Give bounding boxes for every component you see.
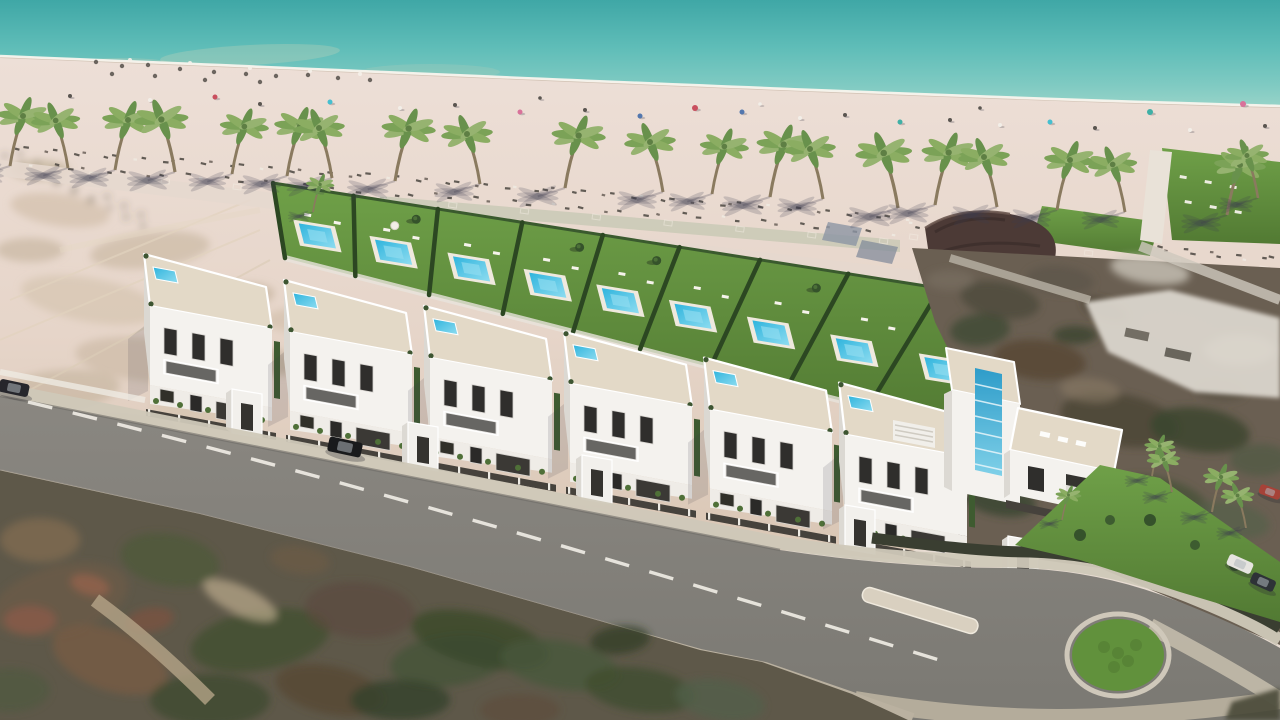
shore-debris-dot (274, 74, 278, 78)
topiary (148, 301, 153, 306)
shrub (205, 407, 211, 413)
beach-item (583, 108, 587, 112)
terrain-blob (926, 270, 974, 290)
window (332, 359, 345, 387)
island-texture (1098, 641, 1110, 653)
topiary (843, 430, 848, 435)
beach-item (1240, 101, 1246, 107)
window (330, 420, 342, 438)
window (300, 415, 314, 430)
palm-crown (1067, 157, 1073, 163)
palm-crown (647, 139, 653, 145)
topiary (288, 327, 293, 332)
topiary (428, 353, 433, 358)
fence-post (738, 518, 740, 525)
sunbed (486, 200, 490, 202)
palm-crown (20, 113, 26, 119)
window (160, 389, 174, 404)
shore-debris-dot (203, 78, 207, 82)
island-texture (1122, 655, 1134, 667)
dune-scrub (3, 154, 7, 158)
beach-item (1093, 126, 1097, 130)
fence-post (488, 472, 490, 479)
palm-crown (880, 150, 887, 157)
beach-item (148, 98, 152, 102)
palm-crown (946, 149, 952, 155)
shrub (153, 398, 159, 404)
window (915, 467, 928, 495)
window (470, 446, 482, 464)
palm-crown (1219, 475, 1223, 479)
dune-scrub (139, 213, 143, 217)
dune-scrub (90, 197, 94, 201)
window (444, 379, 457, 407)
fence-post (548, 483, 550, 490)
palm-crown (1067, 494, 1070, 497)
doorway (241, 403, 253, 431)
palm-crown (1158, 444, 1162, 448)
beach-item (692, 105, 698, 111)
palm-crown (722, 144, 728, 150)
beach-item (518, 110, 523, 115)
plot-hedge (354, 196, 356, 276)
fence-post (708, 513, 710, 520)
terrain-blob (0, 518, 80, 562)
sunbed (766, 204, 770, 207)
topiary (708, 405, 713, 410)
palm-crown (316, 125, 322, 131)
window (220, 338, 233, 366)
parasol (391, 222, 399, 230)
window (190, 394, 202, 412)
window (440, 441, 454, 456)
terrain-blob (4, 606, 56, 634)
tree-highlight (654, 258, 658, 262)
window (752, 436, 765, 464)
shore-debris-dot (248, 66, 252, 70)
palm-crown (158, 116, 164, 122)
window (640, 416, 653, 444)
topiary (703, 357, 708, 362)
topiary (283, 279, 288, 284)
sunbed (909, 222, 913, 225)
beach-item (398, 106, 402, 110)
window (859, 456, 872, 484)
sunbed (29, 164, 33, 167)
shrub (625, 485, 631, 491)
shore-debris-dot (244, 72, 248, 76)
beach-item (1147, 109, 1153, 115)
sunbed (1184, 248, 1189, 251)
beach-item (898, 120, 903, 125)
beach-item (843, 113, 847, 117)
shrub (375, 439, 381, 445)
tree-highlight (577, 244, 581, 248)
shrub (737, 506, 743, 512)
shrub (345, 433, 351, 439)
beach-item (1263, 124, 1267, 128)
topiary (563, 331, 568, 336)
fence-post (798, 529, 800, 536)
fence-post (828, 535, 830, 542)
palm-crown (53, 118, 59, 124)
window (360, 364, 373, 392)
palm-crown (576, 132, 582, 138)
beach-item (1188, 128, 1192, 132)
window (724, 431, 737, 459)
topiary (568, 379, 573, 384)
shore-debris-dot (94, 60, 98, 64)
doorway (417, 436, 429, 464)
beach-item (453, 103, 457, 107)
dune-scrub (18, 152, 22, 156)
shrub (655, 491, 661, 497)
window (612, 410, 625, 438)
beach-item (740, 110, 745, 115)
sunbed (209, 160, 213, 163)
tree-highlight (813, 285, 817, 289)
fence-post (658, 503, 660, 510)
shore-debris-dot (153, 74, 157, 78)
fence-post (628, 498, 630, 505)
shore-debris-dot (146, 63, 150, 67)
palm-crown (981, 154, 987, 160)
shrub (177, 402, 183, 408)
beach-item (978, 106, 982, 110)
sunbed (505, 187, 511, 190)
sunbed (1210, 251, 1214, 253)
dune-scrub (122, 204, 126, 208)
sunbed (696, 216, 702, 219)
shore-debris-dot (212, 70, 216, 74)
sunbed (133, 158, 137, 160)
window (750, 498, 762, 516)
dune-scrub (141, 224, 145, 228)
beach-item (538, 96, 542, 100)
fence-post (458, 466, 460, 473)
palm-crown (319, 183, 322, 186)
fence-post (568, 487, 570, 494)
topiary (838, 382, 843, 387)
doorway (591, 469, 603, 497)
beach-item (758, 102, 762, 106)
shrub (293, 424, 299, 430)
palm-crown (1162, 458, 1166, 462)
shrub (317, 428, 323, 434)
dune-scrub (124, 215, 128, 219)
island-texture (1130, 639, 1142, 651)
palm-crown (242, 124, 248, 130)
window (887, 461, 900, 489)
topiary (143, 253, 148, 258)
shrub (485, 459, 491, 465)
palm-crown (1236, 494, 1240, 498)
sunbed (774, 223, 778, 226)
window (780, 442, 793, 470)
topiary (423, 305, 428, 310)
shrub (539, 469, 545, 475)
palm-crown (125, 117, 131, 123)
beach-item (638, 114, 643, 119)
sunbed (906, 219, 910, 221)
beach-item (328, 100, 333, 105)
shore-debris-dot (188, 61, 192, 65)
shrub (765, 511, 771, 517)
shrub (457, 454, 463, 460)
window (472, 385, 485, 413)
shore-debris-dot (178, 67, 182, 71)
window (304, 353, 317, 381)
beach-item (1048, 120, 1053, 125)
shrub (679, 495, 685, 501)
window (164, 328, 177, 356)
dune-scrub (73, 188, 77, 192)
shore-debris-dot (358, 72, 362, 76)
tree-highlight (413, 216, 417, 220)
beach-item (68, 94, 72, 98)
island-texture (1112, 647, 1124, 659)
fence-post (688, 509, 690, 516)
shore-debris-dot (368, 78, 372, 82)
beach-item (258, 102, 262, 106)
render-image (0, 0, 1280, 720)
beach-item (213, 95, 218, 100)
terrain-blob (350, 680, 450, 720)
fence-post (518, 478, 520, 485)
roundabout (1067, 614, 1169, 696)
sunbed (735, 220, 740, 223)
window (192, 333, 205, 361)
sunbed (349, 175, 353, 177)
palm-crown (781, 141, 787, 147)
shore-debris-dot (258, 80, 262, 84)
shrub (713, 502, 719, 508)
palm-crown (1244, 153, 1249, 158)
shore-debris-dot (306, 73, 310, 77)
shrub (515, 465, 521, 471)
palm-crown (406, 125, 412, 131)
dune-scrub (107, 206, 111, 210)
shore-debris-dot (120, 64, 124, 68)
doorway (854, 519, 866, 547)
island-texture (1108, 661, 1120, 673)
sunbed (179, 158, 184, 161)
scene-canvas (0, 0, 1280, 720)
palm-crown (1110, 162, 1116, 168)
window (720, 492, 734, 507)
shore-debris-dot (110, 72, 114, 76)
dune-scrub (105, 195, 109, 199)
window (584, 405, 597, 433)
beach-item (948, 118, 952, 122)
palm-crown (807, 146, 813, 152)
shore-debris-dot (308, 69, 312, 73)
shrub (795, 517, 801, 523)
shore-debris-dot (128, 58, 132, 62)
beach-item (998, 123, 1002, 127)
window (500, 390, 513, 418)
fence-post (768, 524, 770, 531)
shore-debris-dot (336, 76, 340, 80)
palm-crown (464, 131, 470, 137)
terrain-blob (1053, 326, 1097, 344)
beach-item (798, 116, 802, 120)
